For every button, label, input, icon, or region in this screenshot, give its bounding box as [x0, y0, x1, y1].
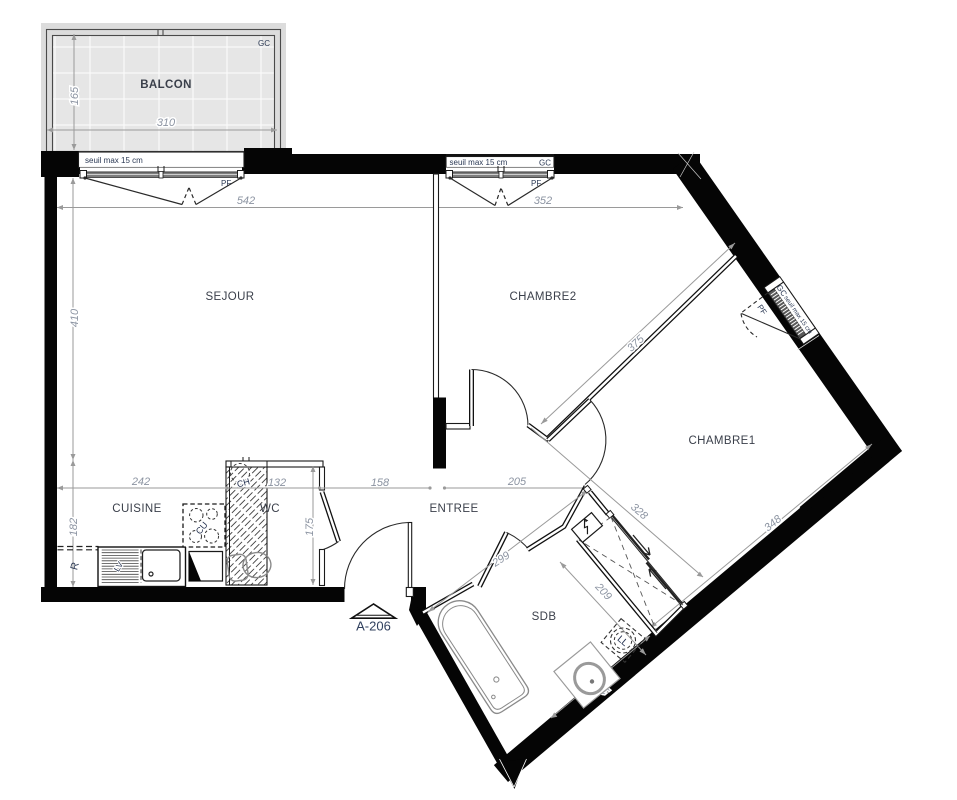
- svg-text:GC: GC: [539, 159, 551, 168]
- svg-text:CHAMBRE2: CHAMBRE2: [509, 291, 576, 303]
- svg-text:CHAMBRE1: CHAMBRE1: [688, 435, 755, 447]
- svg-text:158: 158: [371, 477, 390, 489]
- svg-text:seuil max 15 cm: seuil max 15 cm: [450, 158, 508, 167]
- svg-text:CUISINE: CUISINE: [112, 503, 161, 515]
- svg-text:352: 352: [534, 195, 552, 207]
- svg-text:PF: PF: [531, 179, 541, 188]
- svg-text:182: 182: [68, 518, 80, 536]
- svg-text:SDB: SDB: [532, 611, 557, 623]
- svg-text:GC: GC: [258, 39, 270, 48]
- svg-text:BALCON: BALCON: [140, 79, 192, 91]
- svg-text:seuil max 15 cm: seuil max 15 cm: [85, 156, 143, 165]
- svg-text:410: 410: [69, 308, 81, 327]
- svg-text:242: 242: [131, 476, 150, 488]
- svg-text:205: 205: [507, 476, 527, 488]
- svg-text:132: 132: [268, 477, 286, 489]
- svg-text:ENTREE: ENTREE: [429, 503, 478, 515]
- svg-text:165: 165: [69, 86, 81, 105]
- svg-text:175: 175: [304, 517, 316, 536]
- svg-text:310: 310: [157, 117, 176, 129]
- svg-text:SEJOUR: SEJOUR: [205, 291, 254, 303]
- svg-text:WC: WC: [260, 503, 280, 515]
- svg-text:PF: PF: [221, 179, 231, 188]
- svg-text:542: 542: [237, 195, 255, 207]
- svg-text:A-206: A-206: [356, 619, 391, 634]
